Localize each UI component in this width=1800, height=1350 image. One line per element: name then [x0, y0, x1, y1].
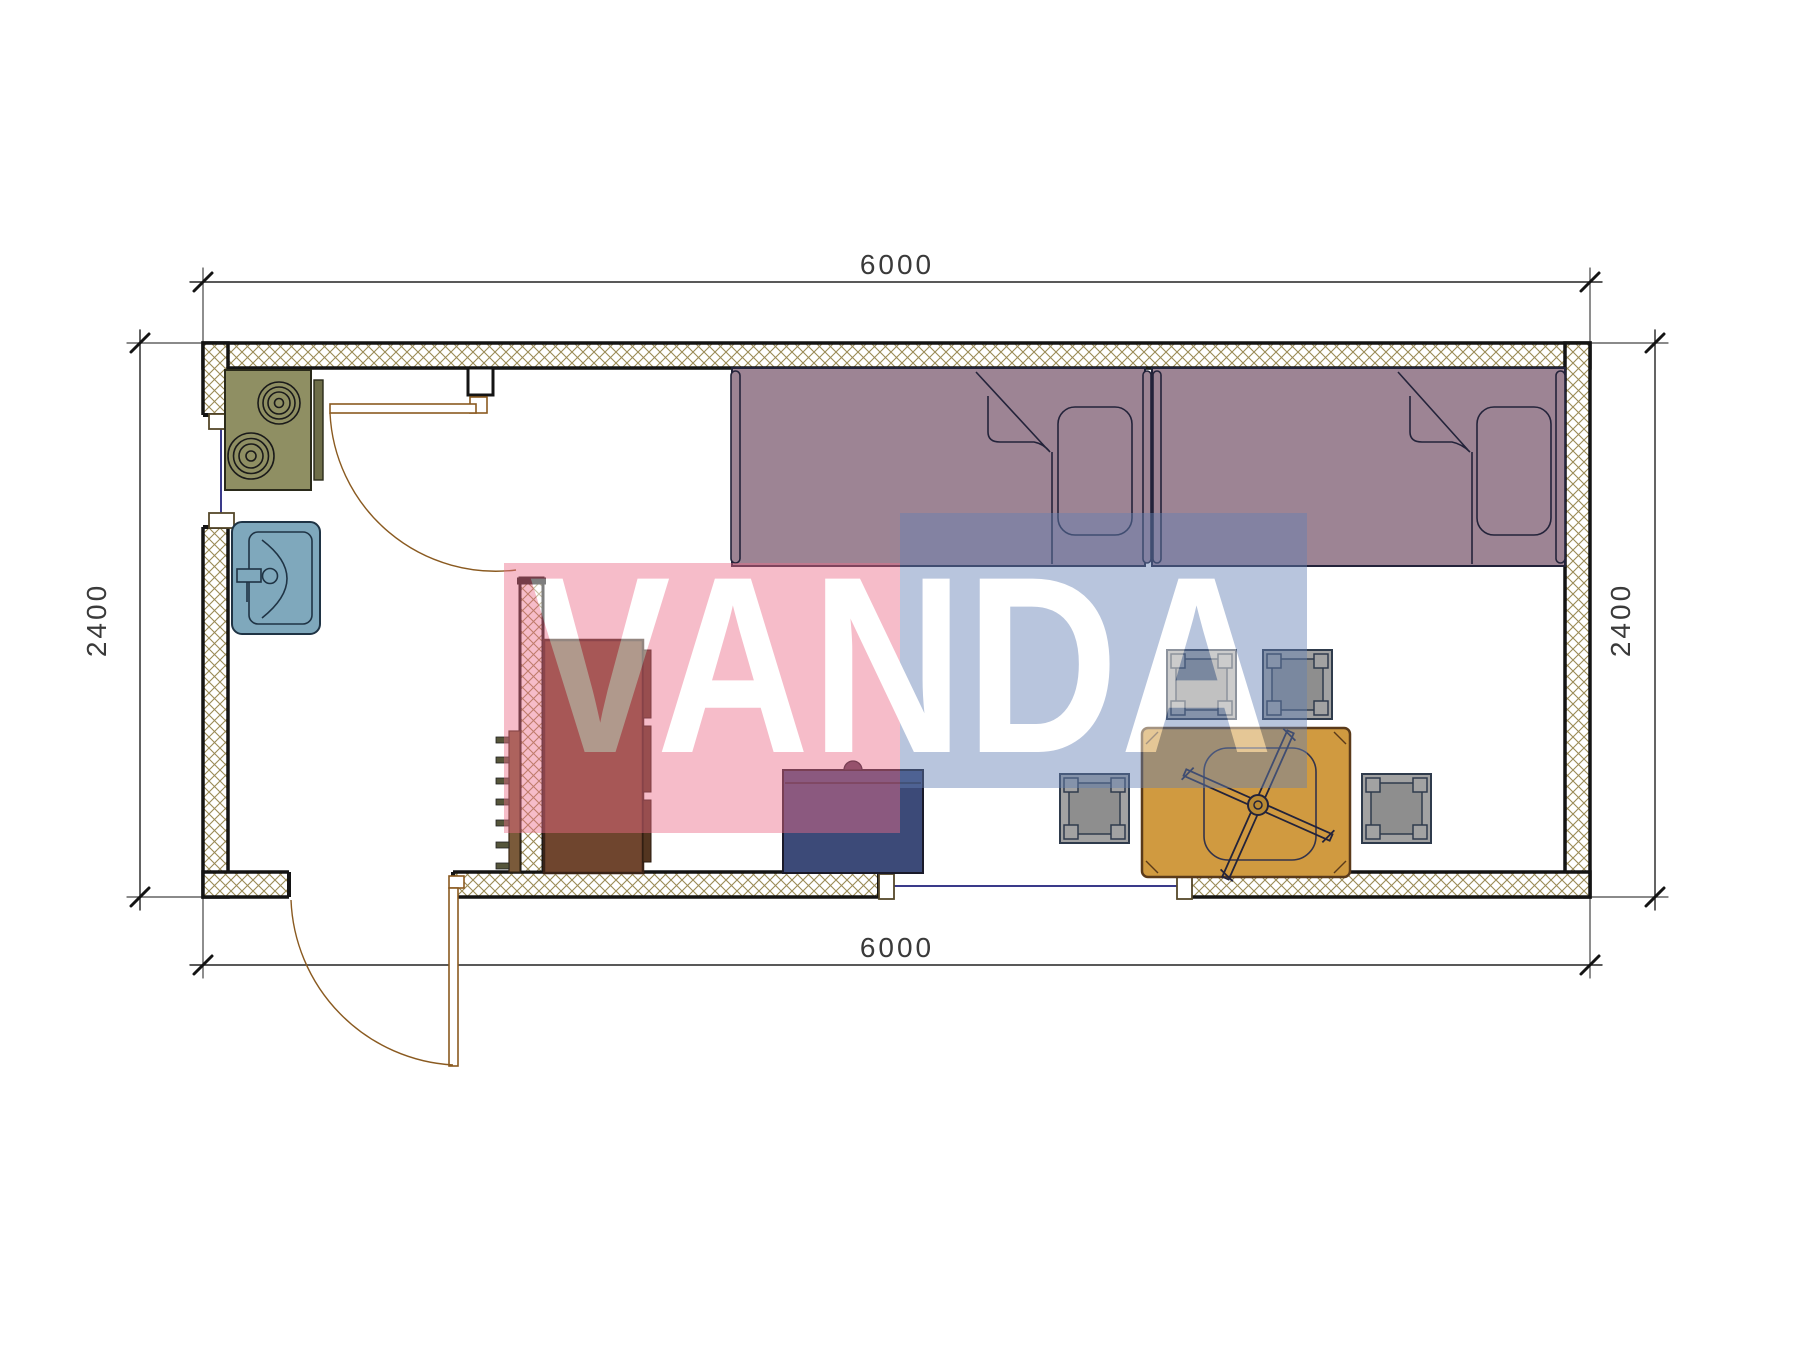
wall-opening-entry-door [289, 868, 453, 901]
door-swing-arc [291, 900, 453, 1065]
window-frame [879, 874, 894, 899]
stove [225, 370, 323, 490]
floor-plan-page: 6000 6000 2400 2400 [0, 0, 1800, 1350]
wall-top [203, 343, 1590, 368]
dimension-left: 2400 [81, 330, 203, 910]
sink-faucet [237, 569, 261, 582]
door-leaf [330, 404, 476, 413]
sink [232, 522, 320, 634]
watermark: VANDA [504, 513, 1307, 833]
dimension-bottom: 6000 [190, 897, 1602, 978]
dimension-label-right: 2400 [1605, 583, 1636, 657]
door-swing-arc [330, 413, 516, 571]
door-stop-notch [468, 368, 493, 395]
wall-right [1565, 343, 1590, 897]
door-hinge-block [449, 876, 464, 888]
dimension-label-left: 2400 [81, 583, 112, 657]
stove-side-panel [314, 380, 323, 480]
entry-door [291, 876, 464, 1066]
dimension-top: 6000 [190, 249, 1602, 343]
floor-plan-drawing: 6000 6000 2400 2400 [0, 0, 1800, 1350]
pillow [1477, 407, 1551, 535]
window-frame [209, 513, 234, 528]
bed-headboard [1556, 371, 1565, 563]
dimension-label-top: 6000 [860, 249, 934, 280]
door-leaf [449, 888, 458, 1066]
watermark-text: VANDA [529, 525, 1274, 807]
stool-4 [1362, 774, 1431, 843]
dimension-right: 2400 [1590, 330, 1668, 910]
interior-door [330, 397, 516, 571]
dimension-label-bottom: 6000 [860, 932, 934, 963]
